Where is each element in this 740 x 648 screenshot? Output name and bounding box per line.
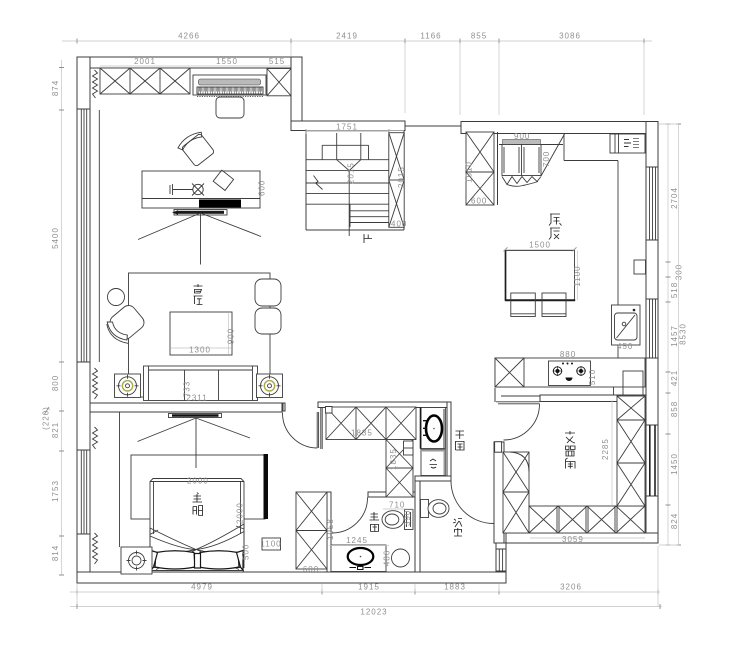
svg-text:824: 824 (670, 513, 679, 529)
svg-text:1883: 1883 (444, 583, 466, 592)
svg-text:2001: 2001 (134, 57, 156, 66)
svg-text:450: 450 (617, 342, 633, 351)
svg-text:2000: 2000 (236, 502, 245, 524)
svg-text:390: 390 (403, 510, 412, 526)
svg-text:1915: 1915 (358, 583, 380, 592)
svg-text:510: 510 (588, 369, 597, 385)
svg-text:486: 486 (383, 550, 392, 566)
svg-text:1958: 1958 (326, 518, 335, 540)
svg-text:814: 814 (51, 545, 60, 561)
svg-text:1300: 1300 (189, 346, 211, 355)
svg-text:821: 821 (51, 422, 60, 438)
svg-text:421: 421 (670, 370, 679, 386)
svg-text:518: 518 (670, 282, 679, 298)
svg-text:855: 855 (471, 32, 487, 41)
svg-text:(220): (220) (42, 406, 51, 430)
svg-text:880: 880 (560, 350, 576, 359)
svg-text:600: 600 (471, 197, 487, 206)
svg-text:700: 700 (542, 151, 551, 167)
svg-text:2419: 2419 (336, 32, 358, 41)
svg-text:2000: 2000 (187, 477, 209, 486)
svg-text:600: 600 (303, 565, 319, 574)
svg-text:2285: 2285 (601, 438, 610, 460)
svg-text:1835: 1835 (351, 429, 373, 438)
svg-text:1753: 1753 (51, 480, 60, 502)
svg-text:874: 874 (51, 80, 60, 96)
svg-text:2704: 2704 (670, 187, 679, 209)
svg-text:2015: 2015 (397, 166, 406, 188)
svg-text:900: 900 (227, 328, 236, 344)
svg-text:2311: 2311 (186, 394, 207, 403)
svg-text:4979: 4979 (191, 583, 213, 592)
svg-text:500: 500 (242, 544, 251, 560)
svg-text:600: 600 (258, 180, 267, 196)
svg-text:1550: 1550 (216, 57, 238, 66)
svg-text:5400: 5400 (51, 227, 60, 249)
svg-text:515: 515 (269, 57, 285, 66)
svg-text:710: 710 (389, 501, 405, 510)
svg-text:1450: 1450 (670, 453, 679, 475)
svg-text:858: 858 (670, 401, 679, 417)
svg-text:2015: 2015 (347, 162, 356, 184)
svg-text:1835: 1835 (389, 448, 398, 470)
svg-text:1166: 1166 (420, 32, 441, 41)
svg-text:3086: 3086 (559, 32, 581, 41)
svg-text:1500: 1500 (529, 241, 551, 250)
svg-text:1510: 1510 (465, 161, 474, 183)
svg-text:800: 800 (51, 375, 60, 391)
svg-text:900: 900 (514, 132, 530, 141)
svg-text:12023: 12023 (360, 608, 387, 617)
svg-text:1245: 1245 (346, 536, 368, 545)
svg-text:1100: 1100 (573, 265, 582, 286)
svg-text:300: 300 (675, 264, 684, 280)
svg-text:8530: 8530 (679, 323, 688, 345)
svg-text:400: 400 (391, 220, 407, 229)
svg-text:3206: 3206 (560, 583, 582, 592)
svg-text:3059: 3059 (562, 535, 584, 544)
svg-text:1100: 1100 (260, 540, 281, 549)
svg-text:4266: 4266 (178, 32, 200, 41)
